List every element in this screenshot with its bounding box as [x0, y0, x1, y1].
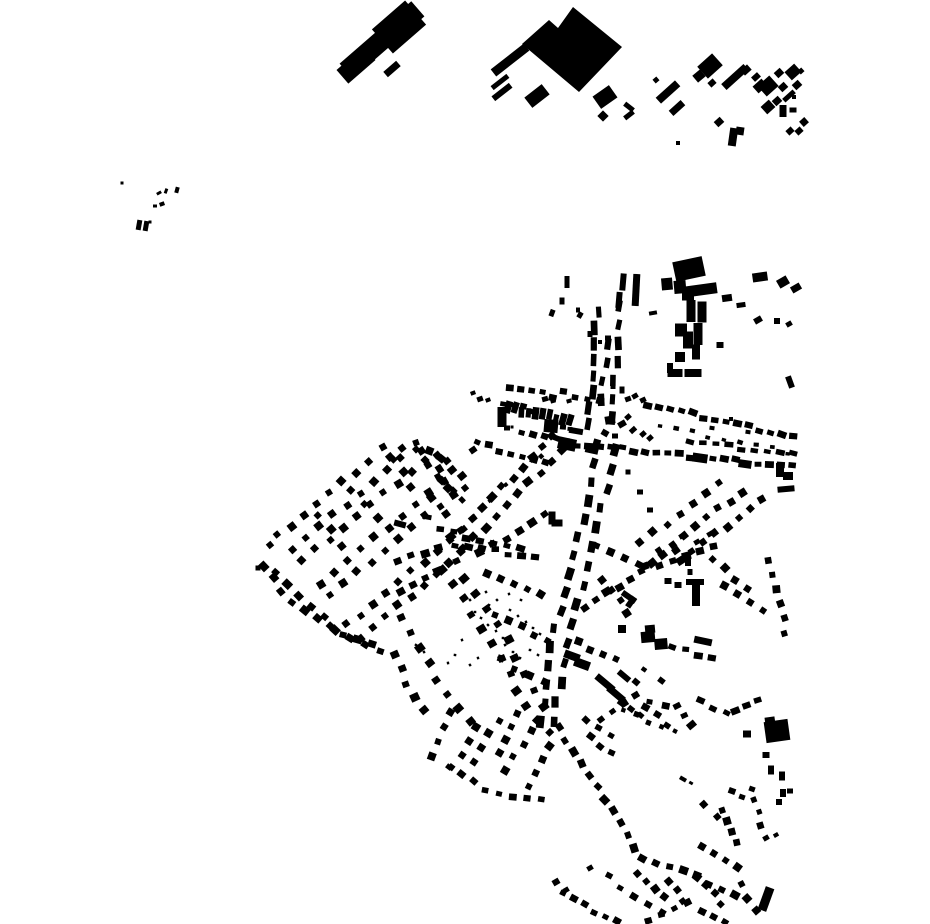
building — [755, 462, 762, 467]
building — [517, 386, 525, 393]
building — [658, 424, 663, 428]
speckle — [529, 649, 532, 652]
building — [598, 340, 602, 344]
building — [611, 381, 616, 389]
building — [571, 394, 578, 401]
building — [612, 434, 618, 439]
building — [538, 796, 545, 803]
building — [615, 356, 621, 368]
building — [709, 456, 717, 462]
building — [780, 105, 787, 117]
building — [121, 182, 124, 185]
landmark-building — [668, 369, 683, 377]
building — [776, 462, 785, 469]
building — [528, 387, 535, 394]
building — [590, 370, 596, 381]
speckle — [474, 611, 477, 613]
landmark-building — [698, 302, 707, 323]
building — [604, 415, 615, 425]
building — [153, 205, 157, 208]
landmark-building — [779, 772, 785, 781]
speckle — [512, 651, 515, 654]
landmark-building — [694, 323, 703, 345]
building — [517, 552, 526, 559]
speckle — [508, 592, 511, 595]
landmark-building — [683, 332, 693, 349]
building — [591, 354, 597, 366]
speckle — [502, 637, 505, 639]
building — [688, 569, 693, 575]
building — [665, 578, 672, 584]
building — [676, 141, 680, 145]
landmark-building — [743, 731, 751, 738]
building — [149, 221, 152, 224]
building — [789, 433, 798, 440]
building — [787, 789, 793, 794]
building — [699, 415, 708, 422]
building — [737, 447, 746, 453]
building — [531, 553, 540, 560]
building — [743, 461, 751, 467]
building — [576, 308, 580, 313]
building — [666, 863, 674, 870]
building — [559, 388, 567, 395]
building — [646, 699, 653, 705]
landmark-building — [645, 625, 656, 634]
building — [509, 793, 517, 800]
speckle — [447, 662, 450, 665]
landmark-building — [685, 369, 702, 377]
landmark-building — [717, 342, 724, 348]
building — [615, 337, 622, 351]
building — [256, 566, 261, 571]
building — [693, 652, 703, 660]
landmark-building — [654, 638, 668, 650]
building — [745, 430, 751, 435]
building — [511, 426, 514, 429]
landmark-building — [692, 345, 700, 360]
building — [675, 582, 682, 588]
building — [523, 795, 531, 802]
building — [647, 508, 653, 513]
landmark-building — [661, 278, 673, 291]
building — [560, 424, 566, 430]
figure-ground-map — [0, 0, 930, 924]
speckle — [532, 627, 535, 630]
landmark-building — [618, 625, 626, 633]
building — [558, 677, 566, 690]
building — [675, 450, 684, 457]
building — [664, 450, 671, 455]
building — [506, 384, 514, 391]
building — [733, 838, 741, 846]
landmark-building — [763, 752, 770, 758]
building — [505, 552, 512, 557]
building — [562, 438, 570, 444]
landmark-building — [783, 472, 793, 480]
building — [792, 95, 796, 99]
building — [724, 441, 733, 447]
building — [551, 696, 558, 707]
building — [491, 546, 499, 552]
building — [567, 427, 572, 431]
building — [596, 306, 602, 317]
building — [682, 646, 689, 652]
building — [653, 450, 661, 456]
landmark-building — [686, 579, 704, 585]
building — [588, 477, 595, 487]
building — [764, 557, 772, 565]
landmark-building — [504, 426, 510, 431]
building — [620, 387, 625, 394]
building — [574, 443, 581, 448]
landmark-building — [776, 799, 782, 805]
building — [637, 490, 643, 495]
landmark-building — [565, 276, 570, 288]
building — [711, 417, 719, 424]
building — [729, 417, 733, 421]
building — [591, 337, 597, 350]
landmark-building — [687, 300, 696, 322]
building — [765, 461, 774, 468]
building — [712, 441, 719, 446]
building — [550, 623, 557, 633]
building — [735, 126, 744, 135]
building-footprint-canvas — [0, 0, 930, 924]
building — [769, 571, 776, 578]
landmark-building — [675, 352, 685, 362]
building — [753, 442, 758, 446]
building — [626, 470, 631, 475]
building — [686, 455, 695, 462]
building — [697, 455, 705, 461]
building — [500, 401, 506, 407]
landmark-building — [722, 294, 733, 302]
building — [560, 298, 565, 305]
building — [772, 585, 780, 593]
building — [605, 336, 611, 341]
landmark-building — [768, 766, 774, 775]
building — [588, 331, 593, 337]
landmark-building — [774, 318, 780, 324]
landmark-building — [682, 292, 694, 301]
building — [699, 440, 707, 445]
map-background — [0, 0, 930, 924]
building — [788, 462, 796, 468]
building — [685, 558, 691, 566]
building — [436, 526, 444, 532]
building — [610, 394, 616, 404]
building — [790, 108, 797, 113]
landmark-building — [764, 716, 775, 725]
building — [709, 426, 715, 431]
landmark-building — [780, 789, 786, 797]
landmark-building — [552, 520, 563, 527]
building — [770, 445, 775, 449]
building — [544, 660, 552, 672]
speckle — [454, 654, 457, 657]
building — [596, 503, 603, 513]
building — [484, 441, 493, 449]
